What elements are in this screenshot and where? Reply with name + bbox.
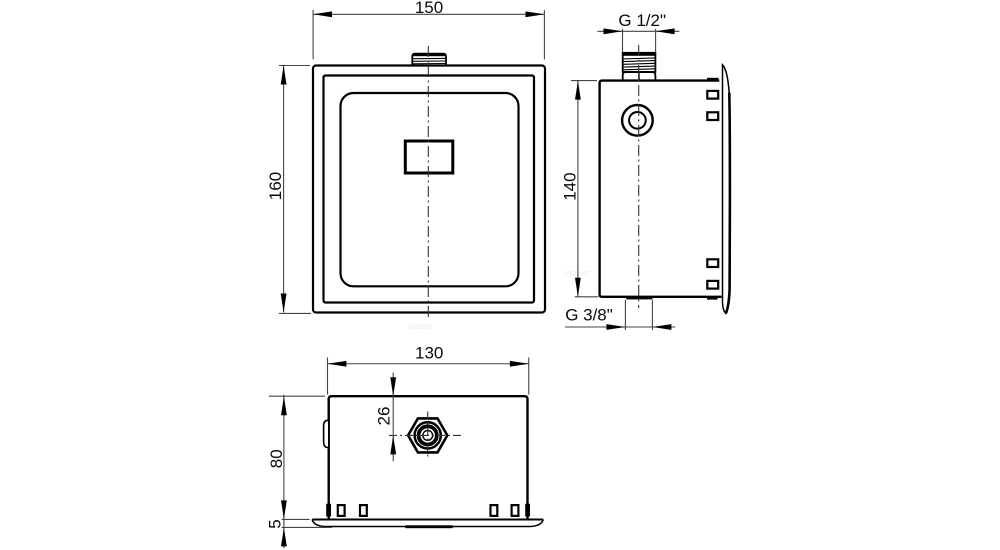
- svg-text:G 1/2": G 1/2": [618, 11, 666, 30]
- svg-text:26: 26: [375, 407, 394, 426]
- svg-text:80: 80: [267, 449, 286, 468]
- svg-text:5: 5: [266, 519, 285, 528]
- svg-text:160: 160: [266, 172, 285, 200]
- svg-text:G 3/8": G 3/8": [565, 306, 613, 325]
- svg-text:150: 150: [415, 0, 443, 17]
- svg-text:clauer: clauer: [408, 321, 434, 331]
- svg-text:130: 130: [415, 343, 443, 362]
- svg-text:140: 140: [561, 172, 580, 200]
